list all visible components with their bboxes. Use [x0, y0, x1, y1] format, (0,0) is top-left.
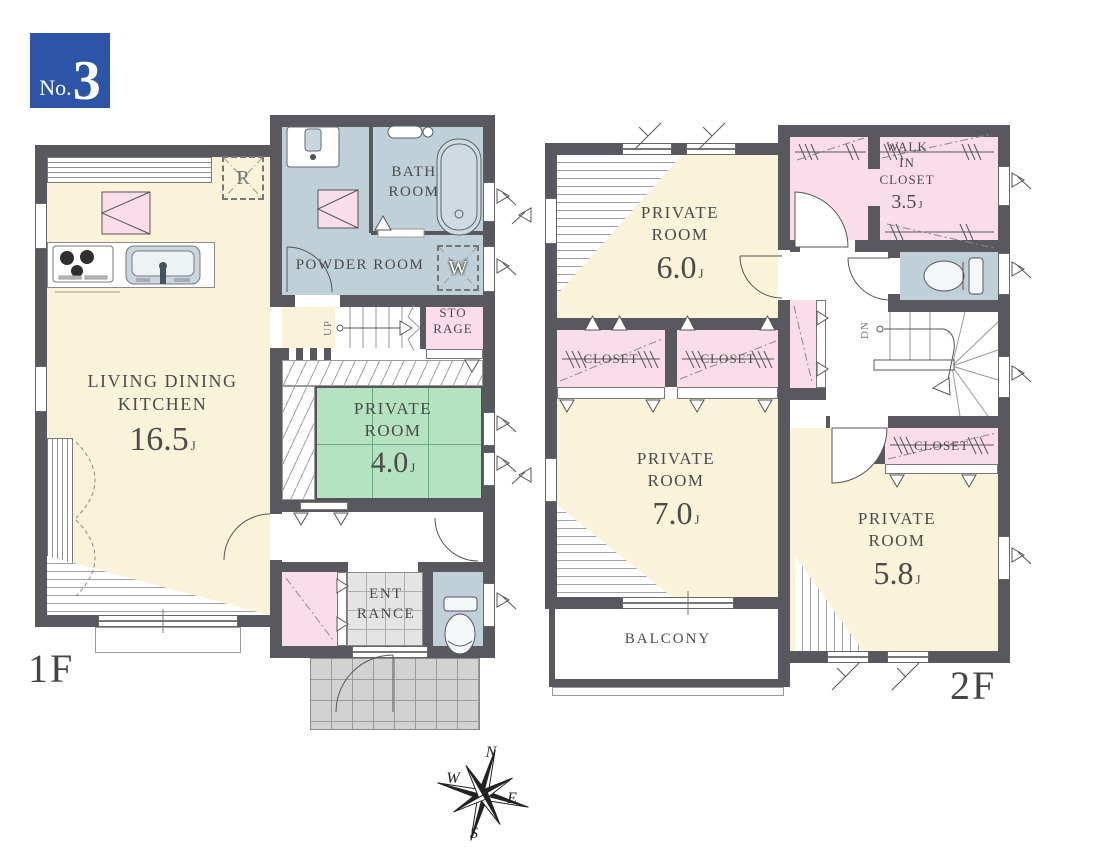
wall — [545, 318, 790, 330]
window — [483, 412, 495, 446]
door-opening — [830, 416, 888, 428]
balcony-wall — [549, 609, 555, 681]
balcony-label: BALCONY — [598, 631, 738, 648]
door-opening — [888, 258, 900, 294]
storage-sliding-door — [426, 349, 483, 359]
stairs1-floor — [335, 307, 420, 348]
closet-b-sliding-door — [677, 387, 778, 399]
kitchen-counter — [47, 242, 215, 288]
hallway-door-arc — [435, 518, 478, 561]
ldk-size: 16.5 — [129, 418, 189, 462]
window-sliding — [887, 651, 929, 663]
storage-label: STO RAGE — [422, 305, 484, 338]
door-opening — [295, 295, 340, 307]
door-opening — [348, 562, 418, 572]
refrigerator-label: R — [236, 167, 249, 190]
terrace-outline — [95, 627, 241, 653]
window — [998, 253, 1010, 295]
window — [483, 182, 495, 222]
compass-s: S — [470, 825, 478, 842]
window-sliding — [827, 651, 869, 663]
bathroom-label: BATH ROOM — [372, 163, 456, 202]
entrance-door — [352, 646, 428, 658]
window-sliding — [98, 615, 238, 627]
window-sliding — [622, 597, 734, 609]
wall — [888, 300, 1010, 312]
window — [545, 198, 557, 244]
wall — [778, 125, 1010, 137]
window — [545, 458, 557, 502]
closet-c-sliding-door — [885, 464, 998, 474]
ldk-unit: J — [191, 438, 196, 455]
closet-a-label: CLOSET — [563, 351, 659, 367]
dashed-wall — [282, 348, 338, 360]
stairs-down: DN — [859, 312, 998, 416]
private4-label: PRIVATE ROOM 4.0J — [322, 398, 464, 482]
toilet1-floor — [433, 572, 483, 646]
window — [998, 536, 1010, 580]
vent-marks-1f — [497, 189, 516, 609]
wall — [270, 115, 282, 307]
door-opening — [800, 240, 855, 252]
ldk-label: LIVING DINING KITCHEN 16.5J — [55, 370, 270, 462]
washer-space: W — [437, 245, 479, 291]
window — [998, 166, 1010, 206]
floor2-label: 2F — [950, 662, 996, 709]
floorplan-canvas: No. 3 R W — [0, 0, 1100, 857]
badge-number: 3 — [73, 59, 101, 104]
window-sliding — [686, 143, 736, 155]
closet-b-label: CLOSET — [679, 351, 777, 367]
closet-a-sliding-door — [557, 387, 665, 399]
washer-label: W — [449, 257, 468, 280]
compass-n: N — [485, 744, 498, 761]
window — [998, 356, 1010, 398]
room58-label: PRIVATE ROOM 5.8J — [806, 508, 988, 595]
window — [483, 452, 495, 486]
stairs-down-label: DN — [859, 321, 871, 339]
hall-closet-floor — [790, 300, 816, 388]
balcony-eave-outline — [552, 687, 784, 696]
window — [483, 583, 495, 627]
room7-label: PRIVATE ROOM 7.0J — [588, 448, 764, 535]
stair-nook-floor — [282, 307, 335, 348]
window — [35, 203, 47, 249]
wall — [270, 115, 495, 127]
floor1-label: 1F — [28, 645, 74, 692]
understairs-band-h — [282, 360, 483, 386]
wall — [778, 388, 826, 400]
wic-label: WALK IN CLOSET 3.5J — [848, 139, 966, 215]
window-sliding — [622, 143, 672, 155]
wall — [665, 330, 677, 387]
kitchen-cabinet — [47, 157, 212, 183]
door-opening — [778, 250, 790, 300]
hall-closet-sliding-door — [816, 300, 826, 388]
window — [483, 246, 495, 292]
ldk-name-line1: LIVING DINING — [88, 370, 238, 393]
powder-room-label: POWDER ROOM — [284, 256, 436, 276]
compass-icon: N W E S — [425, 737, 540, 852]
ldk-name-line2: KITCHEN — [118, 393, 208, 416]
window — [35, 366, 47, 412]
toilet2-door-arc — [848, 258, 890, 300]
entrance-label: ENT RANCE — [346, 585, 426, 624]
closet-c-label: CLOSET — [887, 438, 996, 454]
room6-label: PRIVATE ROOM 6.0J — [592, 202, 768, 289]
porch-floor — [310, 658, 480, 730]
wall — [270, 348, 282, 658]
balcony-wall — [549, 679, 784, 687]
compass-w: W — [446, 770, 461, 787]
wall — [872, 428, 885, 464]
private4-sliding-door — [300, 502, 348, 510]
refrigerator-space: R — [222, 156, 264, 200]
plan-number-badge: No. 3 — [30, 33, 110, 108]
shoe-closet-floor — [282, 572, 337, 646]
understairs-band-v — [282, 386, 315, 500]
badge-prefix: No. — [39, 77, 71, 99]
toilet2-floor — [900, 252, 998, 300]
compass-e: E — [506, 790, 517, 807]
door-opening — [270, 514, 282, 560]
